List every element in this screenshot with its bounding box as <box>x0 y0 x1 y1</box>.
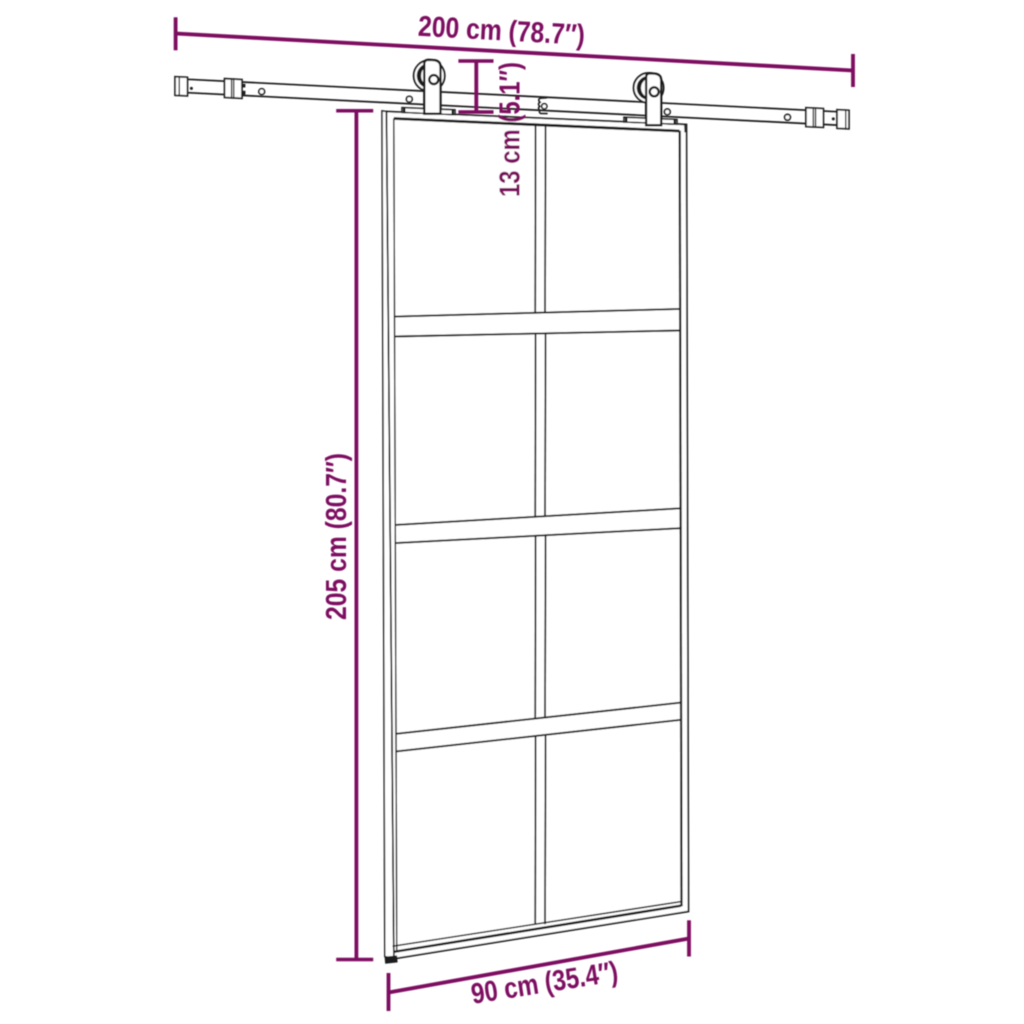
svg-text:205 cm (80.7″): 205 cm (80.7″) <box>321 453 353 620</box>
svg-text:13 cm (5.1″): 13 cm (5.1″) <box>495 62 527 197</box>
